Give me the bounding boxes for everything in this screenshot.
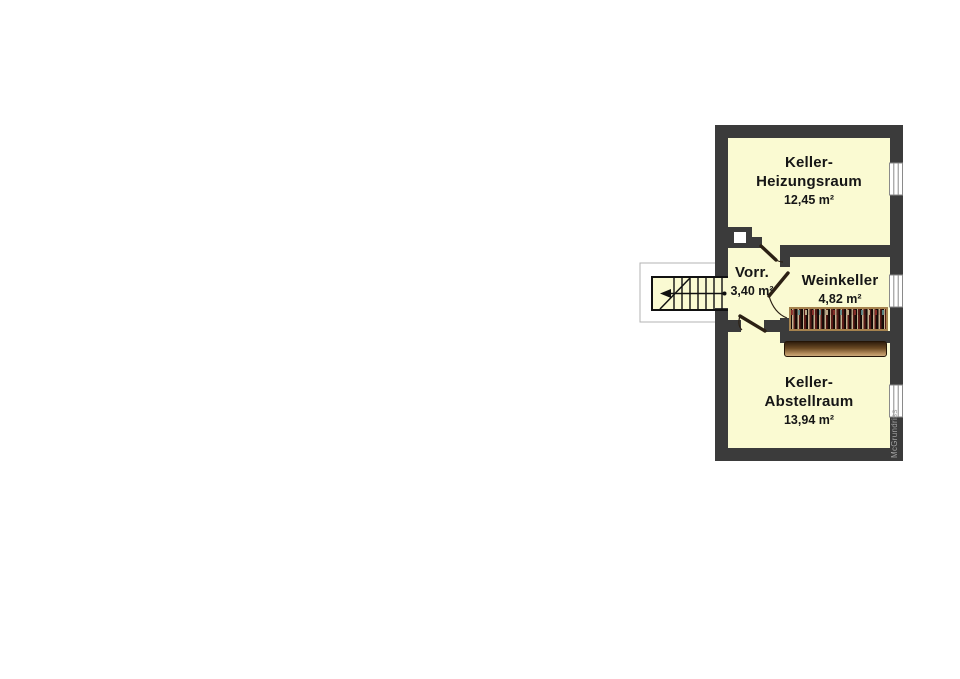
shelf — [784, 341, 887, 357]
building-floor — [728, 138, 890, 448]
chimney — [728, 227, 752, 248]
wall-top — [715, 125, 903, 138]
wall-heizungsraum-south — [780, 245, 890, 257]
wall-bottom — [715, 448, 903, 461]
window-weinkeller-icon — [890, 275, 903, 307]
wall-vorraum-south-right — [764, 320, 790, 332]
stair-arrow-origin-dot — [723, 292, 727, 296]
wine-bottle-caps — [791, 310, 886, 315]
wall-nub-vorraum — [780, 245, 790, 267]
window-heizungsraum-icon — [890, 163, 903, 195]
floorplan-canvas: Keller-Heizungsraum 12,45 m² Vorr. 3,40 … — [0, 0, 960, 679]
wine-rack — [789, 307, 888, 331]
chimney-flue — [734, 232, 746, 243]
wall-left-lower — [715, 308, 728, 461]
floorplan-drawing — [0, 0, 960, 679]
watermark-text: McGrundriss — [890, 409, 899, 458]
wall-left-upper — [715, 125, 728, 277]
